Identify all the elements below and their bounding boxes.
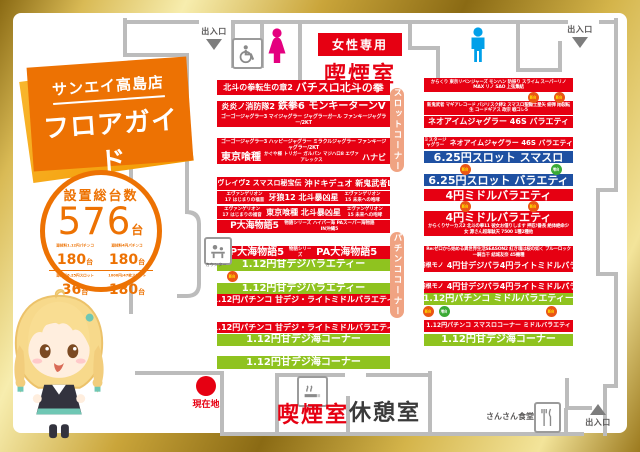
machine-banner: 4円ミドルバラエティ <box>424 189 573 201</box>
badge-text: 新台 <box>229 274 236 279</box>
machine-banner: 4円ミドルバラエティ <box>424 211 573 223</box>
badge-text: 新台 <box>556 95 563 100</box>
banner-text: 4円甘デジバラ4円ライトミドルバラ <box>447 283 573 291</box>
new-machine-badge: 新台 <box>546 306 557 317</box>
banner-text: P大海物語5 <box>230 248 284 258</box>
stat-unit: 台 <box>138 288 145 296</box>
new-machine-badge: 新台 <box>554 92 565 103</box>
pachinko-corner-pill: パチンココーナー <box>390 232 404 318</box>
badge-text: 新台 <box>530 204 537 209</box>
banner-text: 羽根モノ <box>424 263 444 269</box>
machine-banner: 1.12円パチンコ 甘デジ・ライトミドルバラエティ <box>217 322 390 333</box>
new-machine-badge: 新台 <box>528 201 539 212</box>
machine-banner: ゴーゴージャグラー3 ハッピージャグラー ミラクルジャグラー ファンキージャグラ… <box>217 138 390 151</box>
machine-banner: 1.12円甘デジ海コーナー <box>424 334 573 346</box>
banner-text: 6.25円スロット スマスロ <box>434 152 564 163</box>
banner-text: 1.12円甘デジ海コーナー <box>246 358 361 368</box>
store-badge: サンエイ高島店 フロアガイド SAN-EI TAKASHIMA FLOOR GU… <box>27 57 194 172</box>
banner-text: からくりサーカス2 北斗の拳11 彼女お借りします 押忍!番長 絶体絶命少女 源… <box>426 224 571 235</box>
machine-banner: 東京喰種 かぐや様 トリガー ガルパン マジハロ8 エヴァ アレックス ハナビ <box>217 151 390 164</box>
banner-text: ネオアイムジャグラー 46S バラエティ <box>450 140 573 147</box>
machine-banner: 1.12円甘デジバラエティー <box>217 259 390 271</box>
new-machine-badge: 新台 <box>460 164 471 175</box>
stat-item: 遊技料1.12円パチンコ 180台 <box>49 241 101 268</box>
banner-text: エヴァンゲリオン15 未来への咆哮 <box>344 207 386 217</box>
banner-text: ゴーゴージャグラー3 ハッピージャグラー ミラクルジャグラー ファンキージャグラ… <box>219 139 388 151</box>
banner-text: ヴァルヴレイヴ2 スマスロ秘宝伝 <box>217 180 301 187</box>
badge-text: 増台 <box>553 167 560 172</box>
wheelchair-icon <box>232 38 263 69</box>
stats-total-unit: 台 <box>131 223 144 237</box>
badge-text: 増台 <box>441 309 448 314</box>
entrance-label: 出入口 <box>585 417 611 428</box>
mascot-character <box>4 288 114 450</box>
woman-icon <box>264 28 290 68</box>
machine-banner: ヴァルヴレイヴ2 スマスロ秘宝伝 沖ドキデュオ 新鬼武者LUCK <box>217 177 390 190</box>
banner-text: エヴァンゲリオン15 未来への咆哮 <box>341 192 383 202</box>
women-smoking-room: 女性専用 喫煙室 <box>318 33 402 89</box>
machine-banner: Re:ゼロから始める異世界生活SEASON2 紅き魂は桜の如く ブルーロック 一… <box>424 246 573 259</box>
machine-banner: エヴァンゲリオン17 はじまりの福音 東京喰種 北斗暴凶星 エヴァンゲリオン15… <box>217 206 390 219</box>
added-machine-badge: 増台 <box>439 306 450 317</box>
machine-banner: からくり 東京リベンジャーズ モンハン 防振り スライム スーパーリノMAX リ… <box>424 78 573 92</box>
stat-value: 180 <box>57 252 86 268</box>
banner-text: 4円ミドルバラエティ <box>446 212 552 223</box>
new-machine-badge: 新台 <box>460 201 471 212</box>
banner-text: 1.12円甘デジ海コーナー <box>246 335 361 345</box>
machine-banner: 1.12円パチンコ スマスロコーナー ミドルバラエティ <box>424 320 573 332</box>
banner-text: 1.12円パチンコ ミドルバラエティー <box>424 295 573 304</box>
entrance-top-left: 出入口 <box>196 26 232 50</box>
utensils-icon <box>534 402 561 433</box>
floor-guide-poster: スロットコーナー パチンココーナー 北斗の拳転生の章2 バチスロ北斗の拳 炎炎ノ… <box>0 0 640 452</box>
stat-item: 遊技料4円パチンコ 180台 <box>101 241 153 268</box>
banner-text: 1.12円甘デジ海コーナー <box>441 335 556 345</box>
banner-text: 1.12円甘デジバラエティー <box>242 284 365 294</box>
machine-banner: 1.12円甘デジバラエティー <box>217 283 390 294</box>
banner-text: 1.12円パチンコ 甘デジ・ライトミドルバラエティ <box>217 324 390 332</box>
badge-text: 新台 <box>548 309 555 314</box>
machine-count-circle: 設置総台数 576台 遊技料1.12円パチンコ 180台 遊技料4円パチンコ 1… <box>40 170 162 292</box>
banner-text: 6.25円スロット バラエティ <box>428 175 568 186</box>
badge-text: 新台 <box>530 95 537 100</box>
machine-banner: エヴァンゲリオン17 はじまりの福音 牙狼12 北斗暴凶星 エヴァンゲリオン15… <box>217 191 390 204</box>
added-machine-badge: 増台 <box>551 164 562 175</box>
banner-text: 炎炎ノ消防隊2 <box>221 103 275 111</box>
banner-text: 4円甘デジバラ4円ライトミドルバラ <box>447 262 573 270</box>
stat-unit: 台 <box>138 258 145 266</box>
entrance-arrow-icon <box>572 37 588 48</box>
banner-text: エヴァンゲリオン17 はじまりの福音 <box>221 207 263 217</box>
banner-text: 1.12円パチンコ 甘デジ・ライトミドルバラエティ <box>217 296 390 304</box>
badge-text: 新台 <box>462 167 469 172</box>
machine-banner: 羽根モノ 4円甘デジバラ4円ライトミドルバラ <box>424 259 573 272</box>
machine-banner: 6.25円スロット スマスロ <box>424 151 573 163</box>
machine-banner: P大海物語5 物語シリーズ PA大海物語5 <box>217 246 390 259</box>
banner-text: 物語シリーズ ハイパー海 PAスーパー海物語IN沖縄5 <box>282 221 377 231</box>
machine-banner: 1.12円甘デジ海コーナー <box>217 334 390 346</box>
banner-text: 物語シリーズ <box>287 247 313 257</box>
banner-text: かぐや様 トリガー ガルパン マジハロ8 エヴァ アレックス <box>264 152 359 162</box>
stat-label: 1000円/47枚スロット <box>108 273 145 278</box>
banner-text: 4円ミドルバラエティ <box>446 190 552 201</box>
machine-column-right: からくり 東京リベンジャーズ モンハン 防振り スライム スーパーリノMAX リ… <box>424 0 573 452</box>
stat-label: 遊技料4円パチンコ <box>108 243 145 248</box>
new-machine-badge: 新台 <box>423 306 434 317</box>
banner-text: ハナビ <box>362 154 386 162</box>
entrance-arrow-icon <box>206 39 222 50</box>
stat-unit: 台 <box>86 258 93 266</box>
rest-room-label: 休憩室 <box>349 395 421 427</box>
banner-text: 1.12円パチンコ スマスロコーナー ミドルバラエティ <box>426 323 570 329</box>
smoking-room-label: 喫煙室 <box>318 57 402 89</box>
machine-banner: 1.12円パチンコ 甘デジ・ライトミドルバラエティ <box>217 294 390 306</box>
banner-text: Re:ゼロから始める異世界生活SEASON2 紅き魂は桜の如く ブルーロック 一… <box>426 247 571 258</box>
stat-label: 遊技料6.25円スロット <box>56 273 93 278</box>
machine-banner: 羽根モノ 4円甘デジバラ4円ライトミドルバラ <box>424 281 573 293</box>
banner-text: ゴーゴージャグラー3 マイジャグラー ジャグラーガール ファンキージャグラー/2… <box>219 114 388 126</box>
smoking-room-label: 喫煙室 <box>277 397 349 429</box>
banner-text: 1.12円甘デジバラエティー <box>242 260 365 270</box>
current-location-label: 現在地 <box>188 397 224 410</box>
banner-text: 東京喰種 北斗暴凶星 <box>266 209 341 217</box>
banner-text: ミスタージャグラー <box>424 138 447 148</box>
machine-banner: ゴーゴージャグラー3 マイジャグラー ジャグラーガール ファンキージャグラー/2… <box>217 113 390 127</box>
entrance-label: 出入口 <box>201 26 227 37</box>
stats-total-value: 576 <box>58 200 132 243</box>
banner-text: 新鬼武者 マギアレコード バジリスク絆2 スマスロ聖闘士星矢 緋弾 翔裂転生 コ… <box>426 103 571 114</box>
new-machine-badge: 新台 <box>227 271 238 282</box>
machine-banner: 6.25円スロット バラエティ <box>424 174 573 186</box>
machine-banner: P大海物語5 物語シリーズ ハイパー海 PAスーパー海物語IN沖縄5 <box>217 220 390 233</box>
dining-label: さんさん食堂 <box>486 411 534 422</box>
stat-label: 遊技料1.12円パチンコ <box>56 243 93 248</box>
counter-label: カウンター <box>201 262 232 268</box>
banner-text: 東京喰種 <box>221 153 261 163</box>
machine-banner: ミスタージャグラー ネオアイムジャグラー 46S バラエティ <box>424 137 573 149</box>
machine-banner: ネオアイムジャグラー 46S バラエティ <box>424 116 573 128</box>
store-name: サンエイ高島店 <box>51 71 165 105</box>
machine-banner: 炎炎ノ消防隊2 鉄拳6 モンキーターンV <box>217 101 390 113</box>
store-badge-front: サンエイ高島店 フロアガイド SAN-EI TAKASHIMA FLOOR GU… <box>27 57 194 172</box>
banner-text: エヴァンゲリオン17 はじまりの福音 <box>224 192 266 202</box>
slot-corner-pill: スロットコーナー <box>390 88 404 172</box>
banner-text: 北斗の拳転生の章2 <box>223 84 293 92</box>
entrance-top-right: 出入口 <box>562 24 598 48</box>
banner-text: 鉄拳6 モンキーターンV <box>278 102 386 112</box>
man-icon <box>466 27 490 67</box>
banner-text: PA大海物語5 <box>316 248 377 258</box>
badge-text: 新台 <box>462 204 469 209</box>
banner-text: ネオアイムジャグラー 46S バラエティ <box>428 118 569 126</box>
banner-text: 沖ドキデュオ 新鬼武者LUCK <box>304 180 390 188</box>
banner-text: P大海物語5 <box>230 222 279 231</box>
banner-text: 牙狼12 北斗暴凶星 <box>269 194 339 202</box>
entrance-bottom-right: 出入口 <box>580 404 616 428</box>
entrance-label: 出入口 <box>567 24 593 35</box>
entrance-arrow-icon <box>590 404 606 415</box>
machine-banner: 1.12円パチンコ ミドルバラエティー <box>424 293 573 305</box>
banner-text: 羽根モノ <box>424 284 444 290</box>
machine-banner: からくりサーカス2 北斗の拳11 彼女お借りします 押忍!番長 絶体絶命少女 源… <box>424 223 573 236</box>
machine-banner: 新鬼武者 マギアレコード バジリスク絆2 スマスロ聖闘士星矢 緋弾 翔裂転生 コ… <box>424 101 573 115</box>
stats-total: 576台 <box>45 204 157 239</box>
women-only-label: 女性専用 <box>318 33 402 56</box>
stat-value: 180 <box>109 252 138 268</box>
machine-banner: 1.12円甘デジ海コーナー <box>217 356 390 369</box>
current-location-marker <box>196 376 216 396</box>
banner-text: からくり 東京リベンジャーズ モンハン 防振り スライム スーパーリノMAX リ… <box>426 80 571 91</box>
new-machine-badge: 新台 <box>528 92 539 103</box>
badge-text: 新台 <box>425 309 432 314</box>
